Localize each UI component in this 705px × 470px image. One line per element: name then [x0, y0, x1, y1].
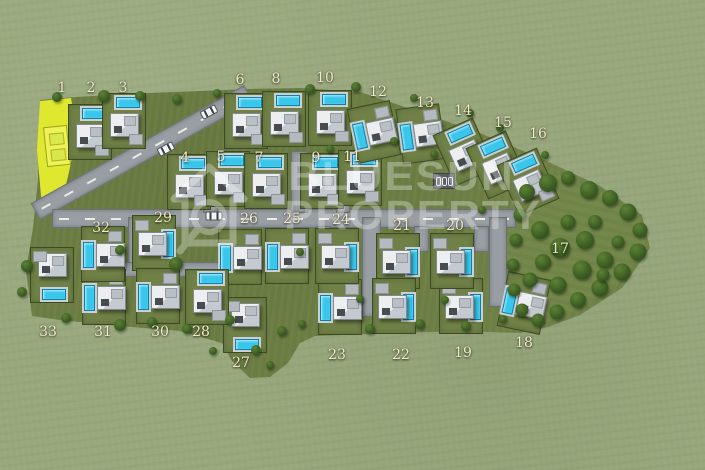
lot-label-32: 32 — [92, 220, 110, 236]
lot-label-20: 20 — [446, 218, 464, 234]
lot-label-14: 14 — [454, 103, 472, 119]
lot-label-15: 15 — [494, 115, 512, 131]
lot-label-18: 18 — [515, 335, 533, 351]
site-plan-canvas: BLUESUN PROPERTY 12345678910111213141516… — [0, 0, 705, 470]
lot-label-29: 29 — [154, 210, 172, 226]
lot-label-6: 6 — [236, 72, 245, 88]
lot-label-26: 26 — [240, 211, 258, 227]
lot-labels-layer: 1234567891011121314151617181920212223242… — [0, 0, 705, 470]
lot-label-1: 1 — [58, 80, 67, 96]
lot-label-30: 30 — [151, 324, 169, 340]
lot-label-12: 12 — [369, 84, 387, 100]
lot-label-31: 31 — [94, 324, 112, 340]
lot-label-22: 22 — [392, 347, 410, 363]
lot-label-4: 4 — [181, 150, 190, 166]
lot-label-10: 10 — [316, 70, 334, 86]
lot-label-23: 23 — [328, 347, 346, 363]
lot-label-28: 28 — [192, 324, 210, 340]
lot-label-19: 19 — [454, 345, 472, 361]
lot-label-2: 2 — [87, 80, 96, 96]
lot-label-16: 16 — [529, 126, 547, 142]
lot-label-27: 27 — [232, 355, 250, 371]
lot-label-13: 13 — [416, 95, 434, 111]
lot-label-9: 9 — [312, 150, 321, 166]
lot-label-11: 11 — [343, 149, 361, 165]
lot-label-8: 8 — [272, 71, 281, 87]
lot-label-24: 24 — [332, 212, 350, 228]
lot-label-5: 5 — [217, 149, 226, 165]
lot-label-33: 33 — [39, 324, 57, 340]
lot-label-7: 7 — [255, 150, 264, 166]
lot-label-3: 3 — [119, 80, 128, 96]
lot-label-25: 25 — [283, 211, 301, 227]
lot-label-17: 17 — [551, 241, 569, 257]
lot-label-21: 21 — [393, 218, 411, 234]
